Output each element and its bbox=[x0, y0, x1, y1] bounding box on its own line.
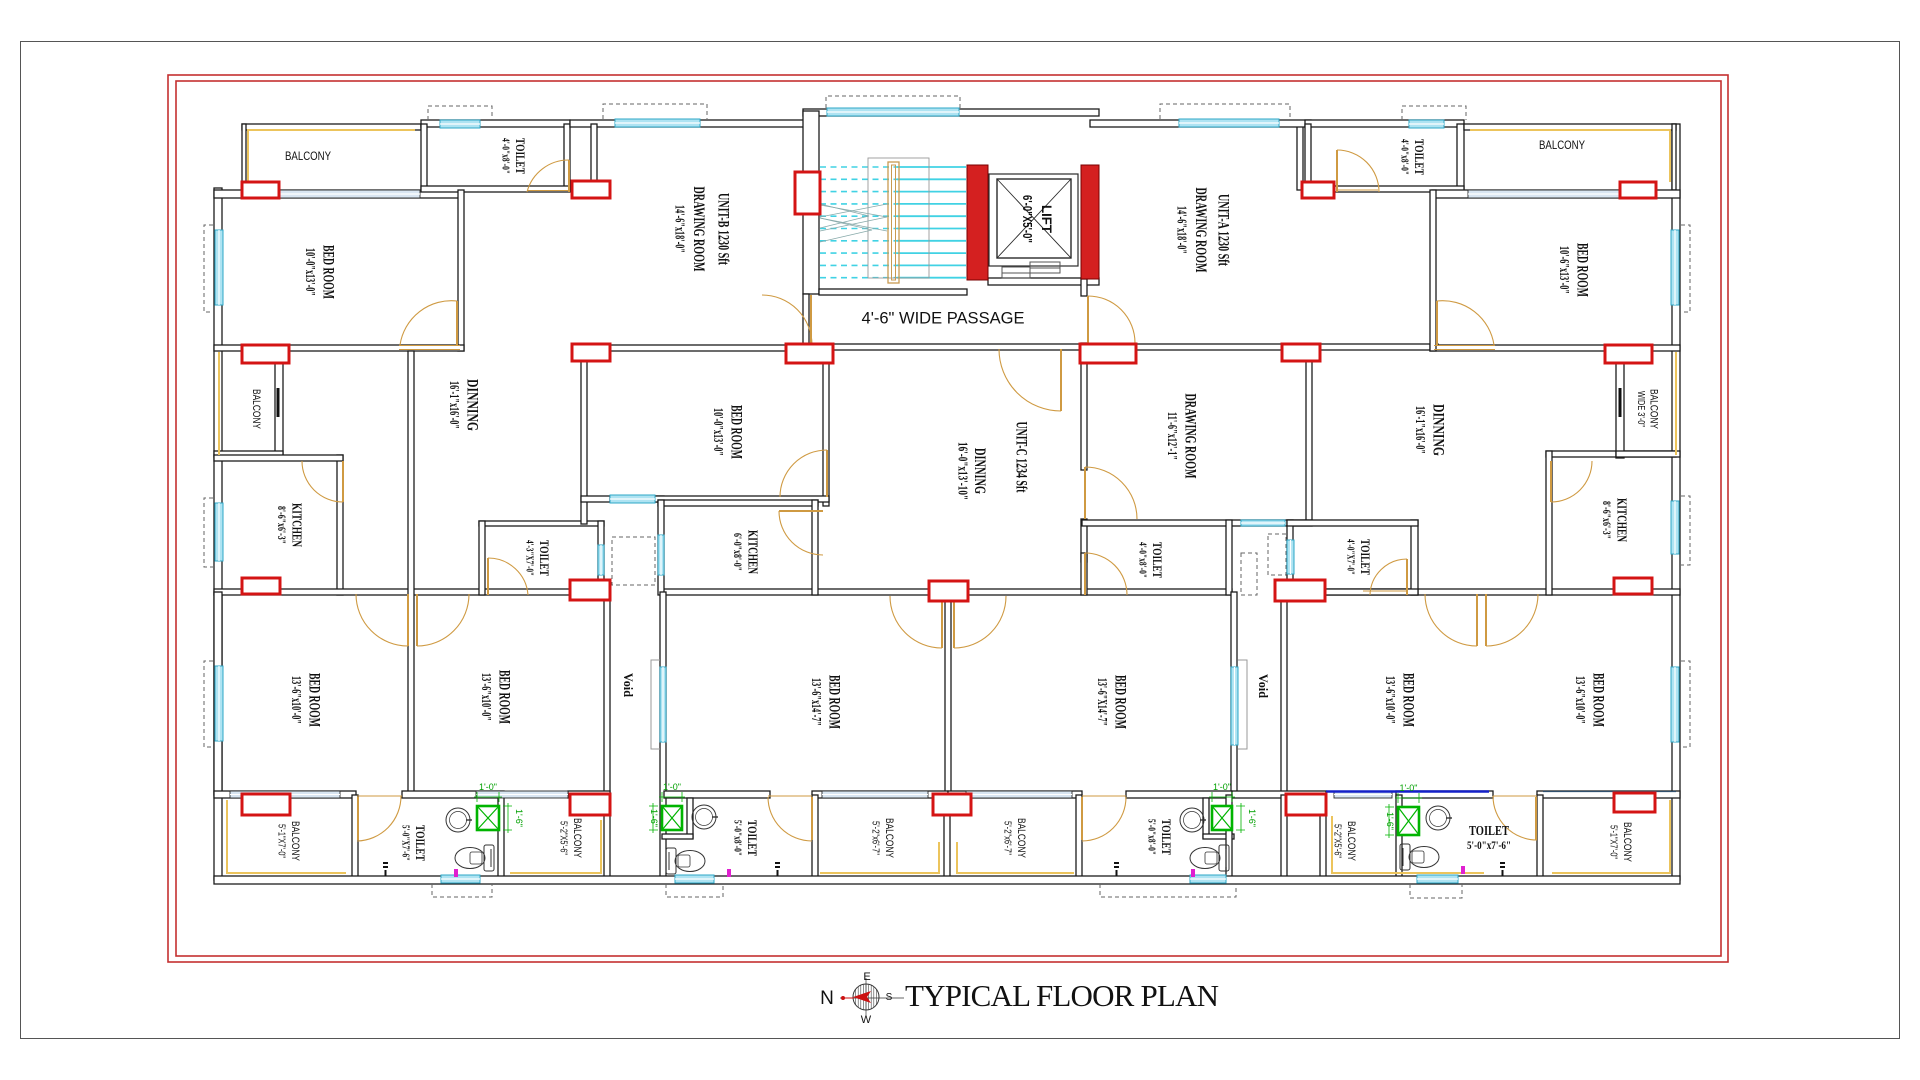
svg-text:BED ROOM: BED ROOM bbox=[1111, 675, 1128, 729]
svg-text:13'-6"x10'-0": 13'-6"x10'-0" bbox=[1382, 676, 1397, 724]
svg-text:1'-0": 1'-0" bbox=[663, 782, 681, 792]
svg-text:DRAWING ROOM: DRAWING ROOM bbox=[690, 187, 707, 272]
svg-text:5'-2"X5'-6": 5'-2"X5'-6" bbox=[557, 821, 568, 855]
svg-text:BALCONY: BALCONY bbox=[289, 821, 301, 862]
svg-text:BED ROOM: BED ROOM bbox=[1589, 673, 1606, 727]
svg-text:13'-6"x10'-0": 13'-6"x10'-0" bbox=[1572, 676, 1587, 724]
svg-text:13'-6"x14'-7": 13'-6"x14'-7" bbox=[808, 678, 823, 726]
svg-text:BALCONY: BALCONY bbox=[883, 818, 895, 859]
svg-text:TOILET: TOILET bbox=[413, 825, 428, 861]
svg-text:16'-0"x13'-10": 16'-0"x13'-10" bbox=[954, 442, 969, 500]
svg-text:5'-1"X7'-0": 5'-1"X7'-0" bbox=[1607, 825, 1618, 859]
svg-text:DRAWING ROOM: DRAWING ROOM bbox=[1181, 394, 1198, 479]
svg-text:1'-0": 1'-0" bbox=[479, 782, 497, 792]
svg-text:BALCONY: BALCONY bbox=[1015, 818, 1027, 859]
svg-text:13'-6"x10'-0": 13'-6"x10'-0" bbox=[478, 673, 493, 721]
svg-text:TOILET: TOILET bbox=[1150, 542, 1165, 578]
svg-text:WIDE 3'-0": WIDE 3'-0" bbox=[1635, 391, 1646, 427]
svg-text:W: W bbox=[861, 1014, 872, 1026]
svg-text:BALCONY: BALCONY bbox=[285, 149, 331, 163]
svg-text:14'-6"x18'-0": 14'-6"x18'-0" bbox=[671, 205, 686, 253]
svg-text:5'-2"X5'-6": 5'-2"X5'-6" bbox=[1331, 824, 1342, 858]
svg-text:4'-0"x8'-0": 4'-0"x8'-0" bbox=[499, 138, 511, 174]
svg-text:4'-6" WIDE PASSAGE: 4'-6" WIDE PASSAGE bbox=[862, 308, 1025, 327]
svg-text:5'-2"x6'-7": 5'-2"x6'-7" bbox=[1001, 821, 1012, 855]
svg-text:BALCONY: BALCONY bbox=[1648, 389, 1660, 430]
svg-text:BED ROOM: BED ROOM bbox=[825, 675, 842, 729]
svg-text:BALCONY: BALCONY bbox=[1621, 822, 1633, 863]
svg-text:DINNING: DINNING bbox=[463, 379, 480, 431]
svg-text:4'-0"x8'-0": 4'-0"x8'-0" bbox=[1398, 139, 1410, 175]
svg-text:13'-6"X14'-7": 13'-6"X14'-7" bbox=[1094, 678, 1109, 726]
svg-text:14'-6"x18'-0": 14'-6"x18'-0" bbox=[1173, 206, 1188, 254]
svg-text:5'-0"x8'-0": 5'-0"x8'-0" bbox=[731, 820, 743, 856]
svg-text:Void: Void bbox=[1256, 674, 1271, 699]
svg-text:1'-6": 1'-6" bbox=[649, 809, 659, 827]
svg-text:BED ROOM: BED ROOM bbox=[495, 670, 512, 724]
svg-text:TYPICAL FLOOR PLAN: TYPICAL FLOOR PLAN bbox=[905, 978, 1219, 1013]
svg-text:16'-1"x16'-0": 16'-1"x16'-0" bbox=[446, 381, 461, 429]
svg-text:S: S bbox=[886, 992, 893, 1003]
svg-text:UNIT-C 1234 Sft: UNIT-C 1234 Sft bbox=[1012, 422, 1029, 493]
svg-text:8'-6"x6'-3": 8'-6"x6'-3" bbox=[1600, 501, 1614, 539]
svg-text:10'-0"x13'-0": 10'-0"x13'-0" bbox=[302, 248, 317, 296]
svg-text:KITCHEN: KITCHEN bbox=[1613, 498, 1628, 542]
svg-text:6'-0"x8'-0": 6'-0"x8'-0" bbox=[731, 533, 745, 571]
svg-text:Void: Void bbox=[621, 673, 636, 698]
svg-text:6'-0"X5'-0": 6'-0"X5'-0" bbox=[1020, 195, 1035, 243]
svg-text:16'-1"x16'-0": 16'-1"x16'-0" bbox=[1412, 406, 1427, 454]
svg-text:TOILET: TOILET bbox=[1358, 539, 1373, 575]
svg-text:TOILET: TOILET bbox=[513, 138, 528, 174]
svg-text:TOILET: TOILET bbox=[537, 540, 552, 576]
svg-text:UNIT-A 1230 Sft: UNIT-A 1230 Sft bbox=[1214, 194, 1231, 266]
svg-text:1'-6": 1'-6" bbox=[514, 809, 524, 827]
svg-text:5'-2"x6'-7": 5'-2"x6'-7" bbox=[869, 821, 880, 855]
svg-text:BED ROOM: BED ROOM bbox=[305, 673, 322, 727]
svg-text:5'-0"x7'-6": 5'-0"x7'-6" bbox=[1467, 838, 1511, 852]
svg-text:BALCONY: BALCONY bbox=[1345, 821, 1357, 862]
svg-text:BALCONY: BALCONY bbox=[571, 818, 583, 859]
svg-text:DINNING: DINNING bbox=[1429, 404, 1446, 456]
svg-text:13'-6"x10'-0": 13'-6"x10'-0" bbox=[288, 676, 303, 724]
svg-text:LIFT: LIFT bbox=[1039, 205, 1055, 233]
svg-text:TOILET: TOILET bbox=[745, 820, 760, 856]
svg-text:UNIT-B 1230 Sft: UNIT-B 1230 Sft bbox=[714, 193, 731, 265]
svg-text:N: N bbox=[820, 988, 834, 1009]
svg-text:5'-1"X7'-0": 5'-1"X7'-0" bbox=[275, 824, 286, 858]
svg-text:BED ROOM: BED ROOM bbox=[1399, 673, 1416, 727]
svg-text:1'-6": 1'-6" bbox=[1247, 809, 1257, 827]
svg-text:1'-0": 1'-0" bbox=[1400, 783, 1418, 793]
svg-text:E: E bbox=[863, 971, 870, 983]
svg-text:4'-0"x8'-0": 4'-0"x8'-0" bbox=[1136, 542, 1148, 578]
svg-text:BED ROOM: BED ROOM bbox=[727, 405, 744, 459]
svg-text:TOILET: TOILET bbox=[1412, 139, 1427, 175]
svg-text:DRAWING ROOM: DRAWING ROOM bbox=[1192, 188, 1209, 273]
svg-text:8'-6"x6'-3": 8'-6"x6'-3" bbox=[275, 506, 289, 544]
svg-text:DINNING: DINNING bbox=[971, 448, 988, 494]
svg-text:TOILET: TOILET bbox=[1159, 819, 1174, 855]
svg-text:KITCHEN: KITCHEN bbox=[288, 503, 303, 547]
svg-text:10'-6"x13'-0": 10'-6"x13'-0" bbox=[1556, 246, 1571, 294]
svg-text:11'-6"x12'-1": 11'-6"x12'-1" bbox=[1164, 412, 1179, 460]
svg-text:1'-6": 1'-6" bbox=[1385, 812, 1395, 830]
svg-text:BED ROOM: BED ROOM bbox=[319, 245, 336, 299]
svg-text:BALCONY: BALCONY bbox=[1539, 138, 1585, 152]
svg-text:5'-0"X7'-6": 5'-0"X7'-6" bbox=[399, 825, 411, 861]
svg-text:BALCONY: BALCONY bbox=[250, 389, 262, 430]
svg-text:BED ROOM: BED ROOM bbox=[1573, 243, 1590, 297]
svg-text:4'-0"X7'-0": 4'-0"X7'-0" bbox=[1344, 539, 1356, 575]
svg-text:5'-0"x8'-0": 5'-0"x8'-0" bbox=[1145, 819, 1157, 855]
svg-text:4'-3"X7'-0": 4'-3"X7'-0" bbox=[523, 540, 535, 576]
svg-text:TOILET: TOILET bbox=[1469, 824, 1509, 839]
svg-text:KITCHEN: KITCHEN bbox=[744, 530, 759, 574]
svg-text:1'-0": 1'-0" bbox=[1213, 782, 1231, 792]
svg-text:10'-0"x13'-0": 10'-0"x13'-0" bbox=[710, 408, 725, 456]
